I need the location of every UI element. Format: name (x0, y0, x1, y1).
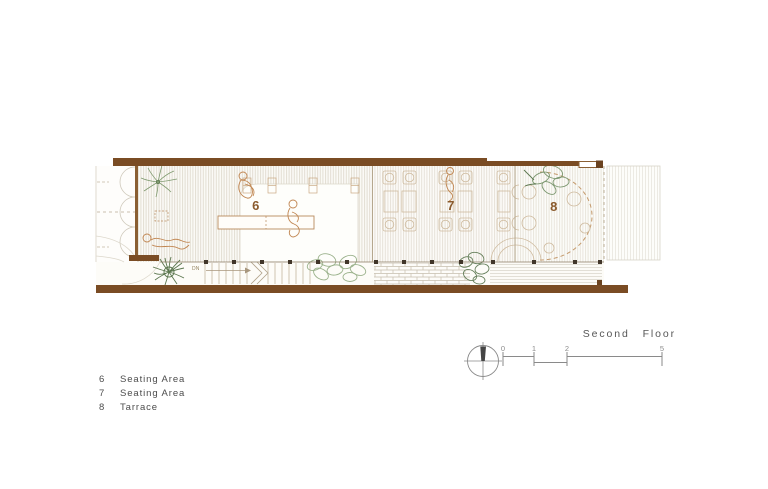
top-wall (113, 158, 487, 166)
scale-bar (503, 352, 662, 366)
room8-terrace-floor (515, 166, 604, 262)
room7-floor (372, 166, 515, 262)
terrace-gate (579, 162, 598, 168)
floor-plan-sheet: 6 7 8 DN Second Floor 0 1 2 5 6 Seating … (0, 0, 768, 489)
legend-label: Seating Area (120, 375, 185, 385)
room6-side-wall (129, 255, 159, 261)
legend-item-7: 7 Seating Area (99, 389, 185, 399)
legend-number: 7 (99, 389, 120, 399)
legend-label: Seating Area (120, 389, 185, 399)
room-label-7: 7 (443, 198, 459, 213)
stairs-down-label: DN (192, 266, 200, 272)
room-label-6: 6 (248, 198, 264, 213)
wall-post-bottom (597, 280, 602, 285)
bottom-wall (96, 285, 628, 293)
scale-tick-1: 1 (532, 344, 536, 353)
legend: 6 Seating Area 7 Seating Area 8 Tarrace (99, 375, 185, 417)
room-label-8: 8 (546, 199, 562, 214)
deck-paving (490, 263, 602, 285)
legend-item-8: 8 Tarrace (99, 403, 185, 413)
wall-post (596, 161, 603, 169)
scale-tick-0: 0 (501, 344, 505, 353)
lower-roof-extension (607, 166, 660, 260)
left-wall (135, 166, 138, 256)
scale-tick-2: 2 (565, 344, 569, 353)
legend-item-6: 6 Seating Area (99, 375, 185, 385)
north-arrow-icon (464, 342, 502, 380)
side-corridor-floor (95, 166, 138, 262)
page-title: Second Floor (583, 328, 676, 340)
brick-paving (374, 263, 470, 285)
scale-tick-5: 5 (660, 344, 664, 353)
top-wall-thin (487, 161, 579, 166)
legend-label: Tarrace (120, 403, 158, 413)
legend-number: 8 (99, 403, 120, 413)
legend-number: 6 (99, 375, 120, 385)
